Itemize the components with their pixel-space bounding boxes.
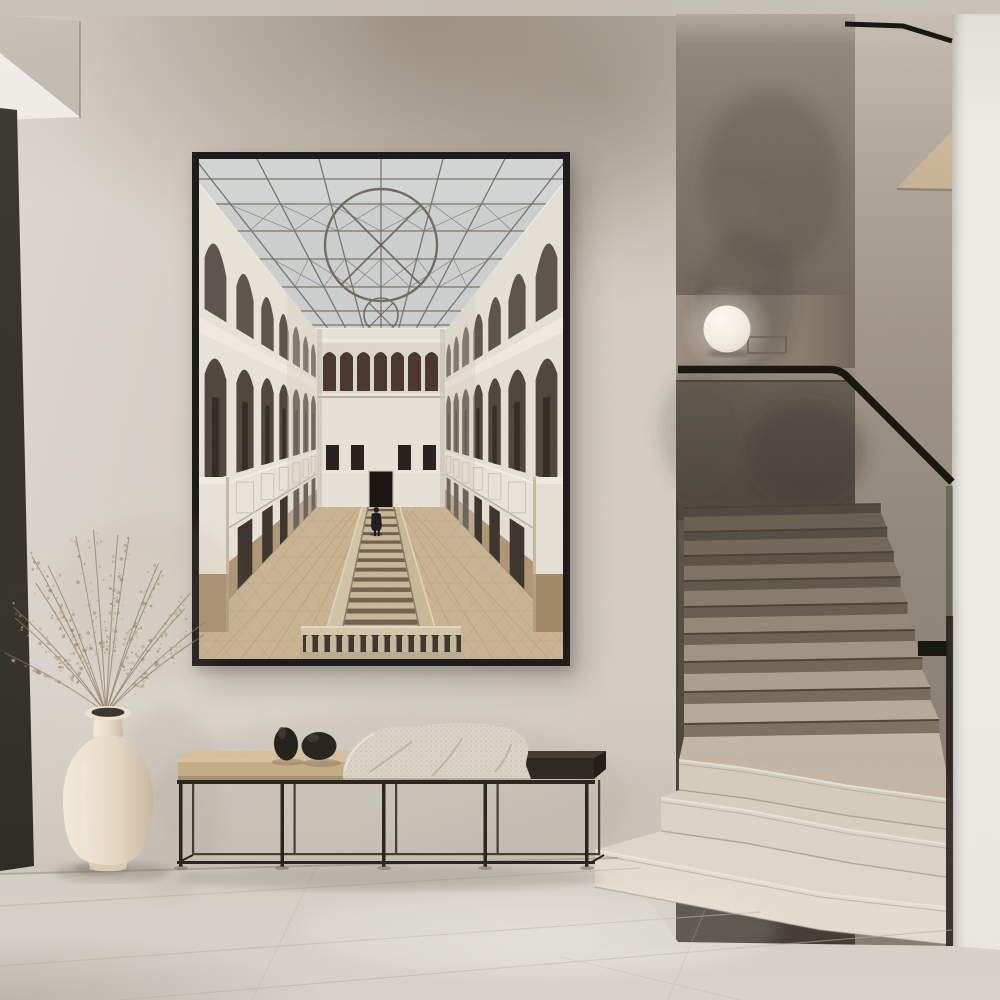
interior-scene bbox=[0, 0, 1000, 1000]
photo-grain bbox=[0, 0, 1000, 1000]
furnishings-layer bbox=[0, 0, 1000, 1000]
